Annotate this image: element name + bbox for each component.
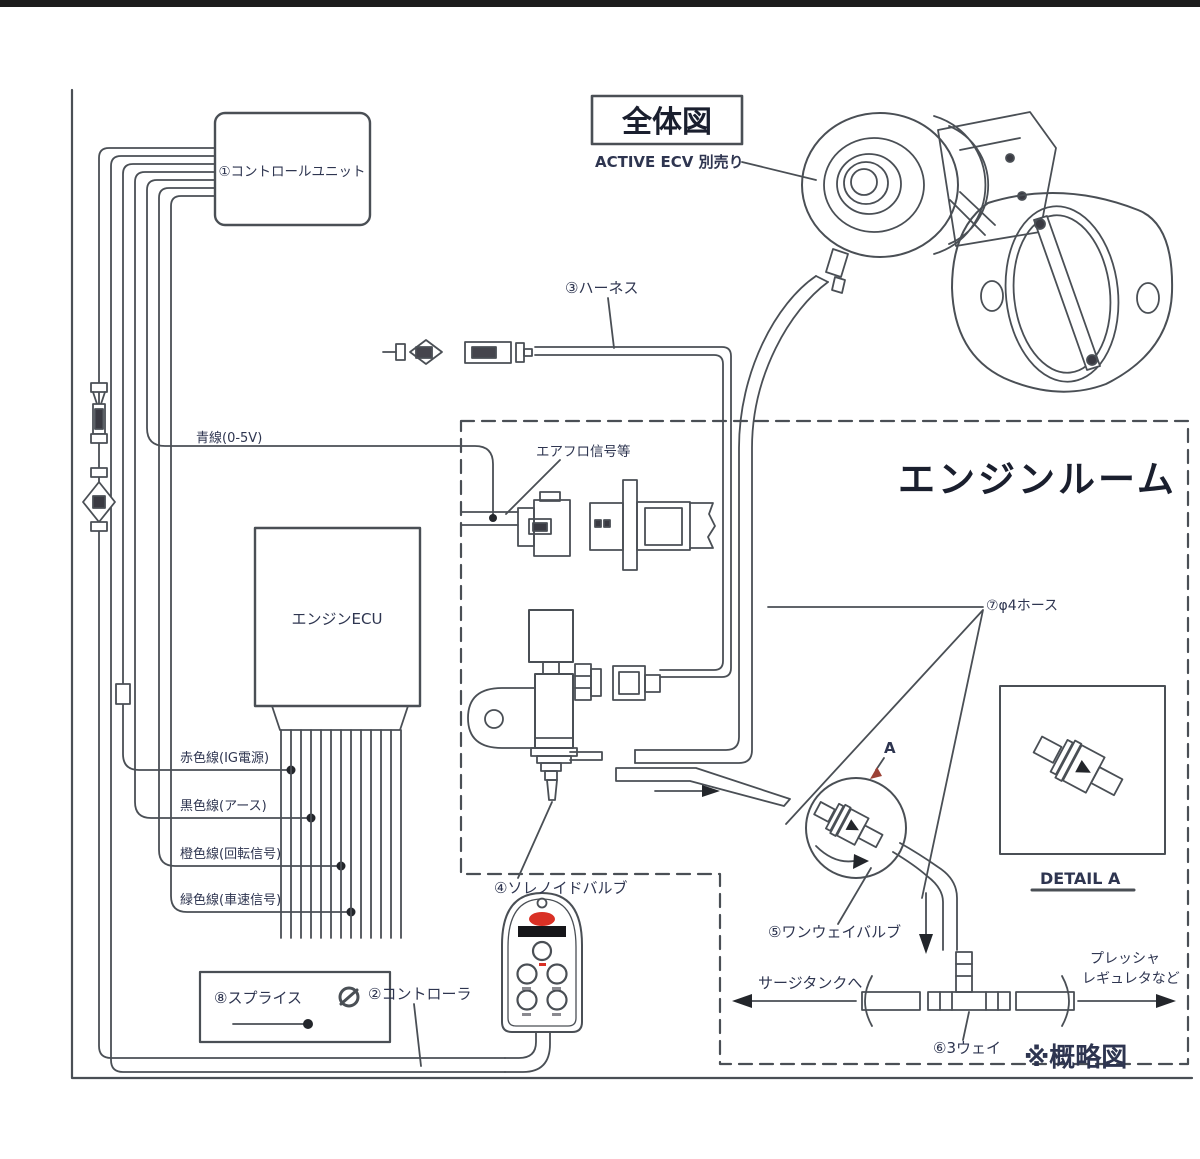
pressure-regulator-label-line2: レギュレタなど — [1082, 971, 1180, 987]
wiring-diagram: 全体図 ACTIVE ECV 別売り ①コントロールユニット ③ハーネス 青線(… — [0, 0, 1200, 1159]
control-unit-label: ①コントロールユニット — [218, 164, 365, 180]
diagram-canvas: 全体図 ACTIVE ECV 別売り ①コントロールユニット ③ハーネス 青線(… — [0, 0, 1200, 1159]
one-way-valve-label: ⑤ワンウェイバルブ — [768, 923, 901, 941]
controller-drawing — [414, 893, 582, 1072]
hose-drawings — [570, 276, 983, 954]
detail-a-caption: DETAIL A — [1040, 869, 1121, 888]
black-wire-label: 黒色線(アース) — [180, 798, 267, 814]
surge-tank-label: サージタンクへ — [758, 974, 862, 992]
harness-drawing — [383, 298, 731, 677]
controller-logo — [529, 912, 555, 926]
solenoid-valve-label: ④ソレノイドバルブ — [494, 879, 627, 897]
line-art — [72, 90, 1192, 1078]
detail-a-drawing — [1000, 686, 1165, 890]
diagram-labels: 全体図 ACTIVE ECV 別売り ①コントロールユニット ③ハーネス 青線(… — [180, 105, 1180, 1073]
inline-connector-1 — [91, 383, 107, 443]
orange-wire-label: 橙色線(回転信号) — [180, 846, 281, 862]
ecv-valve-drawing — [802, 112, 1172, 392]
ecv-sold-separately-note: ACTIVE ECV 別売り — [595, 153, 744, 171]
hose-label: ⑦φ4ホース — [986, 598, 1058, 614]
engine-room-label: エンジンルーム — [898, 458, 1177, 501]
harness-label: ③ハーネス — [565, 279, 638, 297]
ecu-drawing — [255, 528, 420, 938]
photo-top-strip — [0, 0, 1200, 7]
detail-a-marker: A — [884, 739, 896, 757]
schematic-note: ※概略図 — [1024, 1042, 1127, 1073]
engine-ecu-label: エンジンECU — [292, 610, 383, 628]
three-way-label: ⑥3ウェイ — [933, 1039, 1001, 1057]
controller-label: ②コントローラ — [368, 985, 471, 1003]
splice-legend — [200, 972, 390, 1042]
one-way-valve-drawing — [806, 758, 906, 924]
red-wire-label: 赤色線(IG電源) — [180, 750, 269, 766]
splice-label: ⑧スプライス — [214, 989, 302, 1007]
inline-connector-3 — [116, 684, 130, 704]
airflow-signal-label: エアフロ信号等 — [536, 443, 631, 460]
pressure-regulator-label-line1: プレッシャ — [1090, 951, 1160, 967]
airflow-connector-drawing — [506, 460, 715, 570]
solenoid-valve-drawing — [468, 610, 660, 878]
overall-diagram-title: 全体図 — [621, 105, 712, 140]
blue-wire-label: 青線(0-5V) — [196, 430, 262, 446]
green-wire-label: 緑色線(車速信号) — [180, 892, 281, 908]
